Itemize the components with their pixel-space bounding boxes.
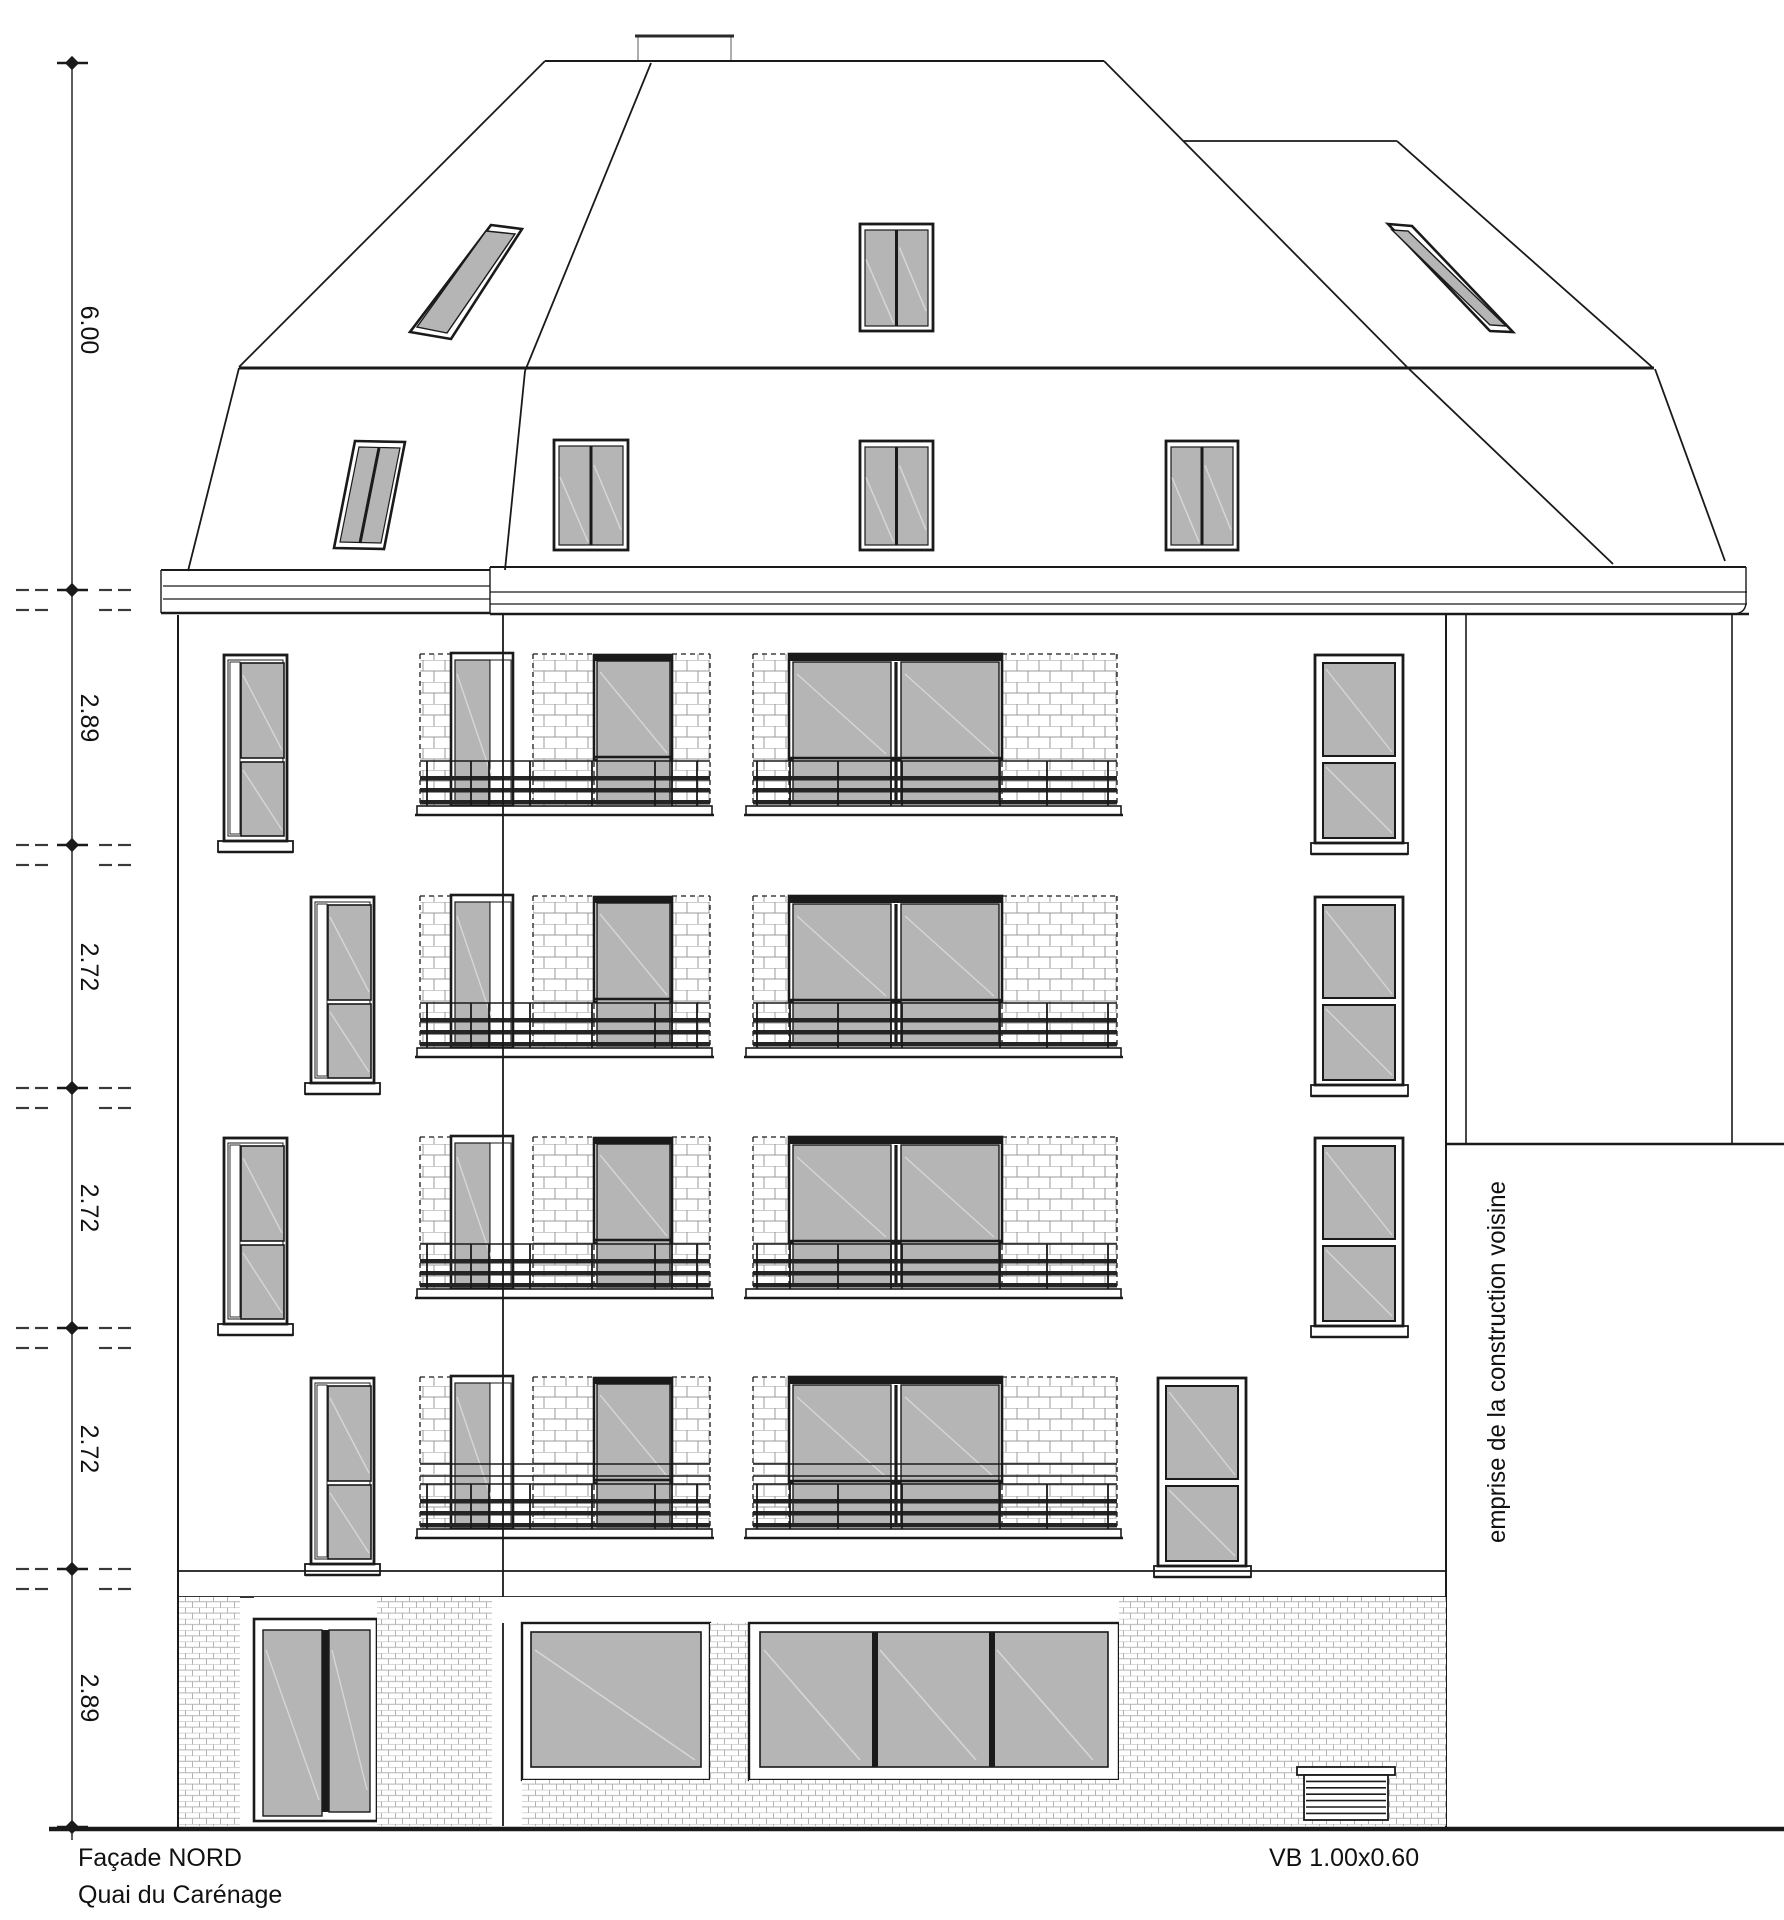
svg-text:2.72: 2.72 bbox=[75, 1184, 103, 1233]
svg-text:emprise de la construction voi: emprise de la construction voisine bbox=[1483, 1181, 1511, 1543]
svg-text:6.00: 6.00 bbox=[75, 306, 103, 355]
svg-text:2.72: 2.72 bbox=[75, 1425, 103, 1474]
svg-text:2.72: 2.72 bbox=[75, 943, 103, 992]
svg-text:2.89: 2.89 bbox=[75, 1674, 103, 1723]
svg-text:Façade NORD: Façade NORD bbox=[78, 1844, 242, 1872]
svg-text:2.89: 2.89 bbox=[75, 694, 103, 743]
svg-text:Quai du Carénage: Quai du Carénage bbox=[78, 1881, 282, 1909]
svg-text:VB 1.00x0.60: VB 1.00x0.60 bbox=[1269, 1844, 1419, 1872]
